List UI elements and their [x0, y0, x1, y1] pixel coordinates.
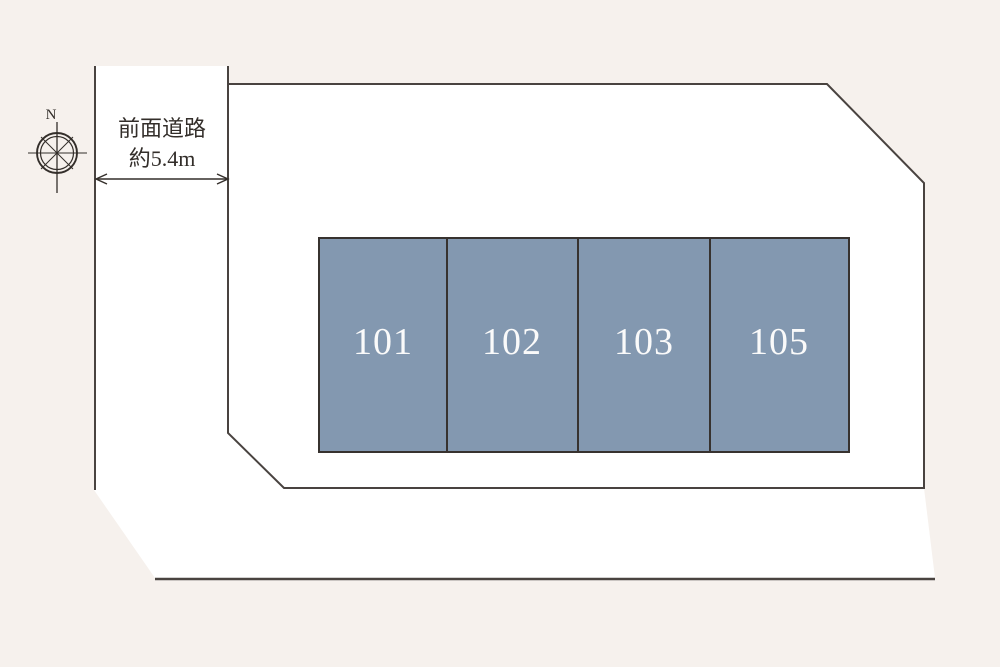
unit-cell-105: 105 [710, 238, 849, 452]
road-label-line2: 約5.4m [129, 146, 196, 171]
unit-cell-103: 103 [578, 238, 710, 452]
compass-north-label: N [46, 107, 57, 123]
road-label-line1: 前面道路 [118, 116, 206, 141]
unit-label: 101 [353, 321, 413, 363]
unit-cell-102: 102 [447, 238, 578, 452]
unit-cell-101: 101 [319, 238, 447, 452]
unit-label: 105 [749, 321, 809, 363]
site-plan: 前面道路 約5.4m N 101 102 103 105 [0, 0, 1000, 667]
unit-label: 102 [482, 321, 542, 363]
unit-label: 103 [614, 321, 674, 363]
